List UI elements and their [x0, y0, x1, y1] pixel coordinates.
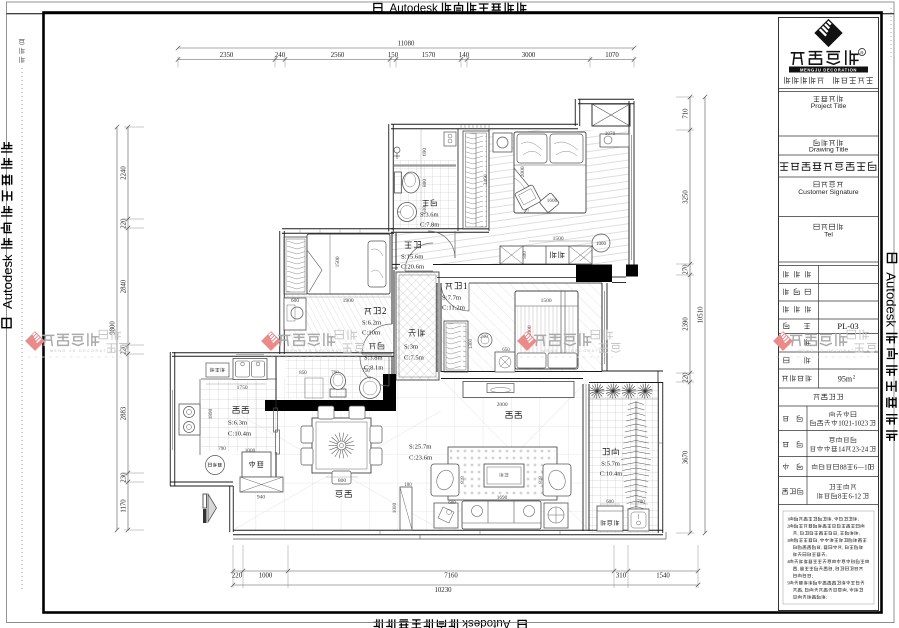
svg-text:140: 140: [459, 52, 470, 59]
svg-text:1300: 1300: [469, 339, 474, 350]
svg-text:2350: 2350: [220, 52, 234, 59]
svg-text:2883: 2883: [121, 406, 128, 420]
svg-text:2390: 2390: [683, 317, 690, 331]
svg-text:10510: 10510: [698, 306, 705, 324]
svg-text:220: 220: [683, 372, 690, 383]
svg-text:1: 1: [787, 517, 789, 522]
svg-text:270: 270: [683, 264, 690, 275]
svg-text:790: 790: [218, 446, 226, 452]
svg-text:600: 600: [291, 298, 300, 304]
svg-text:710: 710: [683, 108, 690, 119]
svg-text:PL-03: PL-03: [837, 321, 858, 331]
svg-text:2000: 2000: [520, 166, 526, 177]
svg-text:MENGJU DECORATION: MENGJU DECORATION: [800, 68, 857, 73]
svg-text:690: 690: [422, 148, 428, 157]
svg-text:6-12: 6-12: [849, 494, 862, 501]
svg-text:C:11.2m: C:11.2m: [442, 304, 466, 311]
svg-text:220: 220: [232, 573, 243, 580]
svg-text:1540: 1540: [656, 573, 670, 580]
svg-text:Customer Signature: Customer Signature: [798, 189, 859, 196]
svg-text:Tel: Tel: [824, 232, 833, 239]
svg-text:S:6.2m: S:6.2m: [362, 319, 382, 326]
svg-text:1500: 1500: [553, 236, 564, 242]
svg-text:500: 500: [522, 251, 528, 259]
svg-text:1: 1: [463, 281, 467, 291]
svg-text:Autodesk: Autodesk: [0, 254, 15, 309]
svg-text:Project Title: Project Title: [811, 103, 847, 110]
svg-text:1000: 1000: [392, 502, 398, 513]
svg-text:23-24: 23-24: [852, 447, 869, 454]
svg-text:1500: 1500: [541, 298, 552, 304]
svg-text:940: 940: [257, 495, 266, 501]
svg-text:310: 310: [616, 573, 627, 580]
svg-text:1570: 1570: [422, 52, 436, 59]
svg-text:C:7.5m: C:7.5m: [404, 354, 425, 361]
svg-text:S:3.8m: S:3.8m: [364, 354, 383, 361]
svg-text:3460: 3460: [483, 174, 489, 185]
svg-text:C:7.8m: C:7.8m: [420, 221, 439, 228]
svg-text:818: 818: [539, 476, 544, 484]
svg-text:11080: 11080: [398, 41, 415, 48]
svg-text:C:10.4m: C:10.4m: [600, 470, 623, 477]
svg-text:1070: 1070: [605, 52, 619, 59]
svg-text:Drawing Title: Drawing Title: [809, 147, 849, 154]
svg-text:2000: 2000: [497, 402, 508, 408]
svg-text:1600: 1600: [547, 198, 558, 204]
svg-text:S:25.7m: S:25.7m: [409, 443, 432, 450]
svg-text:88: 88: [840, 465, 847, 472]
svg-text:2: 2: [787, 524, 789, 529]
svg-text:800: 800: [422, 179, 428, 188]
svg-text:1170: 1170: [121, 499, 128, 513]
svg-text:1690: 1690: [497, 495, 508, 501]
svg-text:C:10.4m: C:10.4m: [228, 430, 252, 437]
svg-text:6—10: 6—10: [854, 465, 872, 472]
svg-text:S:7.7m: S:7.7m: [442, 294, 462, 301]
svg-text:1070: 1070: [605, 131, 616, 137]
svg-text:95m: 95m: [838, 375, 853, 384]
svg-text:;: ;: [826, 595, 827, 600]
svg-text:;: ;: [826, 552, 827, 557]
svg-text:1900: 1900: [343, 298, 354, 304]
svg-text:1890: 1890: [208, 408, 214, 419]
svg-text:8: 8: [838, 494, 842, 501]
svg-text:2: 2: [382, 306, 386, 316]
svg-text:700: 700: [637, 500, 645, 505]
svg-text:S:6.3m: S:6.3m: [228, 419, 248, 426]
svg-text:750: 750: [362, 368, 370, 374]
svg-text:;: ;: [812, 573, 813, 578]
svg-text:S:5.7m: S:5.7m: [601, 460, 620, 467]
svg-text:Autodesk: Autodesk: [884, 272, 899, 327]
svg-text:1750: 1750: [237, 385, 248, 391]
svg-text:3250: 3250: [683, 190, 690, 204]
svg-text:C:23.6m: C:23.6m: [409, 454, 433, 461]
svg-text:800: 800: [338, 478, 347, 484]
svg-text:210: 210: [480, 335, 488, 340]
svg-text:2840: 2840: [121, 279, 128, 293]
svg-text:2240: 2240: [121, 166, 128, 180]
svg-text:2560: 2560: [331, 52, 345, 59]
svg-text:3000: 3000: [522, 52, 536, 59]
svg-text:100: 100: [404, 483, 412, 488]
svg-text:;: ;: [859, 531, 860, 536]
svg-text:7160: 7160: [444, 573, 458, 580]
svg-text:3670: 3670: [683, 450, 690, 464]
svg-text:Autodesk: Autodesk: [390, 2, 439, 15]
svg-text:150: 150: [388, 52, 399, 59]
svg-text:230: 230: [121, 472, 128, 483]
svg-text:10230: 10230: [435, 587, 453, 594]
svg-text:1000: 1000: [596, 242, 607, 247]
svg-text:600: 600: [606, 500, 614, 505]
svg-text:14: 14: [838, 447, 845, 454]
svg-text:1021-1023: 1021-1023: [838, 421, 868, 428]
svg-text:240: 240: [275, 52, 286, 59]
svg-text:S:15.6m: S:15.6m: [401, 253, 424, 260]
svg-text:850: 850: [299, 370, 307, 376]
svg-text:818: 818: [461, 476, 466, 484]
svg-text:C:20.6m: C:20.6m: [401, 263, 425, 270]
svg-text:S:3.6m: S:3.6m: [420, 211, 439, 218]
svg-text:600: 600: [448, 501, 456, 506]
svg-text:1500: 1500: [335, 256, 341, 267]
svg-text:S:3m: S:3m: [404, 343, 419, 350]
svg-text:220: 220: [121, 218, 128, 229]
svg-text:1000: 1000: [259, 573, 273, 580]
svg-text:C:10m: C:10m: [362, 329, 381, 336]
svg-text:650: 650: [502, 348, 510, 353]
svg-text:1000: 1000: [245, 448, 256, 454]
svg-text:;: ;: [858, 517, 859, 522]
